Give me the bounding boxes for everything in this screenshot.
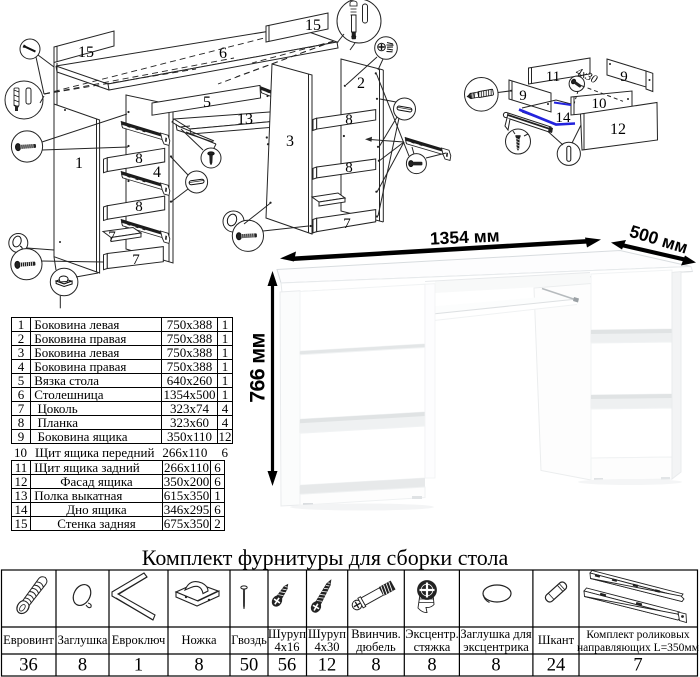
svg-text:7: 7 bbox=[108, 229, 116, 245]
svg-text:766 мм: 766 мм bbox=[246, 333, 270, 402]
svg-text:направляющих L=350мм: направляющих L=350мм bbox=[577, 642, 700, 654]
svg-text:24: 24 bbox=[547, 656, 566, 676]
svg-text:Комплект роликовых: Комплект роликовых bbox=[586, 629, 689, 641]
svg-text:10: 10 bbox=[592, 96, 607, 112]
svg-text:1354 мм: 1354 мм bbox=[429, 225, 500, 248]
svg-text:12: 12 bbox=[610, 121, 626, 138]
svg-text:8: 8 bbox=[194, 656, 203, 676]
svg-text:Евровинт: Евровинт bbox=[3, 633, 54, 647]
svg-text:9: 9 bbox=[519, 88, 527, 104]
svg-text:7: 7 bbox=[132, 252, 140, 268]
svg-text:дюбель: дюбель bbox=[356, 640, 396, 654]
svg-text:8: 8 bbox=[345, 112, 353, 128]
svg-text:Евроключ: Евроключ bbox=[112, 633, 166, 647]
svg-text:9: 9 bbox=[620, 69, 628, 85]
svg-text:Заглушка: Заглушка bbox=[58, 633, 108, 647]
svg-text:7: 7 bbox=[633, 656, 642, 676]
svg-text:1: 1 bbox=[134, 656, 143, 676]
svg-text:8: 8 bbox=[427, 656, 436, 676]
svg-text:эксцентрика: эксцентрика bbox=[463, 640, 529, 654]
svg-text:Шуруп: Шуруп bbox=[308, 627, 346, 641]
svg-text:50: 50 bbox=[240, 656, 259, 676]
svg-text:Эксцентр.: Эксцентр. bbox=[405, 627, 458, 641]
svg-text:36: 36 bbox=[19, 656, 38, 676]
svg-text:12: 12 bbox=[318, 656, 337, 676]
svg-text:3: 3 bbox=[286, 133, 294, 150]
svg-text:13: 13 bbox=[237, 111, 253, 128]
svg-text:2: 2 bbox=[357, 75, 365, 92]
svg-text:8: 8 bbox=[135, 151, 143, 167]
svg-text:11: 11 bbox=[546, 69, 560, 85]
svg-text:Заглушка для: Заглушка для bbox=[460, 627, 532, 641]
svg-text:Ввинчив.: Ввинчив. bbox=[351, 627, 401, 641]
svg-text:1: 1 bbox=[75, 155, 83, 172]
svg-text:15: 15 bbox=[305, 17, 321, 34]
svg-text:стяжка: стяжка bbox=[414, 640, 451, 654]
svg-text:4: 4 bbox=[153, 164, 161, 181]
svg-text:Шуруп: Шуруп bbox=[268, 627, 306, 641]
svg-text:56: 56 bbox=[278, 656, 297, 676]
svg-text:Гвоздь: Гвоздь bbox=[231, 633, 267, 647]
svg-text:7: 7 bbox=[343, 216, 351, 232]
svg-text:4х30: 4х30 bbox=[315, 640, 340, 654]
svg-text:8: 8 bbox=[135, 199, 143, 215]
svg-text:Ножка: Ножка bbox=[181, 633, 216, 647]
svg-text:4х16: 4х16 bbox=[275, 640, 300, 654]
svg-text:8: 8 bbox=[491, 656, 500, 676]
svg-text:5: 5 bbox=[203, 94, 211, 111]
svg-text:8: 8 bbox=[371, 656, 380, 676]
svg-text:Шкант: Шкант bbox=[538, 633, 575, 647]
svg-text:15: 15 bbox=[78, 44, 94, 61]
svg-text:8: 8 bbox=[345, 160, 353, 176]
svg-text:8: 8 bbox=[78, 656, 87, 676]
